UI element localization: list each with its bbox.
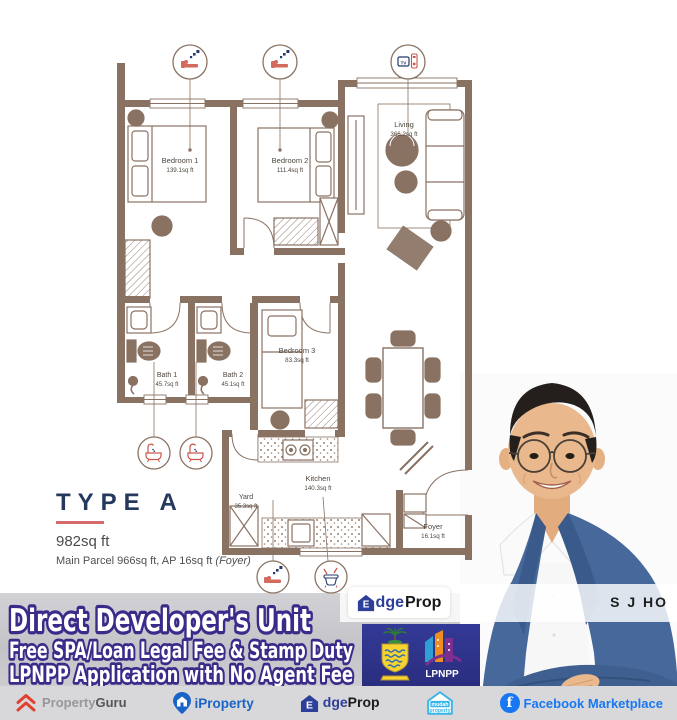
edgeprop-house-icon: E [357,594,375,612]
title-underline [56,521,104,524]
bath2-area: 45.1sq ft [221,382,244,388]
mudah-property-logo: mudah property [426,690,454,716]
living-label: Living [394,120,414,129]
bedroom3-label: Bedroom 3 [279,346,316,355]
penang-crest-icon [378,628,412,682]
bathtub-icon [138,437,170,469]
bed-icon [257,561,289,593]
kitchen-label: Kitchen [305,474,330,483]
foyer-label: Foyer [423,522,443,531]
edgeprop-icon: E [300,694,319,713]
living-area: 366.2sq ft [390,131,417,138]
lpnpp-label: LPNPP [425,669,459,680]
banner-line3: LPNPP Application with No Agent Fee [9,663,353,686]
bed-icon [263,45,297,79]
portal-logos-bar: PropertyGuru iProperty E dgeProp mudah p… [0,686,677,720]
kitchen-area: 140.3sq ft [304,485,331,492]
banner-line1: Direct Developer's Unit [9,603,311,639]
facebook-icon: f [500,693,520,713]
bath1-label: Bath 1 [157,372,177,379]
bath2-label: Bath 2 [223,372,243,379]
bath1-area: 45.7sq ft [155,382,178,388]
agent-name: S J HO [610,594,668,610]
mudah-property-icon: mudah property [426,690,454,716]
parcel-note: Main Parcel 966sq ft, AP 16sq ft (Foyer) [56,555,251,567]
parcel-note-text: Main Parcel 966sq ft, AP 16sq ft [56,555,212,567]
tv-icon-label: TV [401,61,407,66]
unit-type-block: TYPE A 982sq ft Main Parcel 966sq ft, AP… [56,489,251,567]
unit-type-title: TYPE A [56,489,251,517]
bedroom2-area: 111.4sq ft [277,167,304,174]
foyer-area: 16.1sq ft [421,533,445,540]
propertyguru-icon [14,693,38,713]
authority-logo-panel: LPNPP [362,624,480,686]
svg-text:E: E [306,700,313,711]
svg-text:property: property [429,708,450,714]
facebook-marketplace-logo: f Facebook Marketplace [500,693,663,713]
iproperty-logo: iProperty [173,692,254,714]
bedroom2-label: Bedroom 2 [272,156,309,165]
bathtub-icon [180,437,212,469]
bedroom1-area: 139.1sq ft [166,167,193,174]
edgeprop-logo: E dgeProp [300,694,380,713]
propertyguru-logo: PropertyGuru [14,693,127,713]
property-flyer: { "floor_plan": { "type_title": "TYPE A"… [0,0,677,720]
bed-icon [173,45,207,79]
svg-text:E: E [362,599,369,610]
tv-icon: TV [391,45,425,79]
edgeprop-badge-end: Prop [405,594,441,612]
svg-text:mudah: mudah [431,702,448,708]
edgeprop-badge-mid: dge [376,594,404,612]
bedroom3-area: 83.3sq ft [285,357,309,364]
parcel-note-foyer: (Foyer) [215,555,250,567]
total-area: 982sq ft [56,533,251,550]
lpnpp-logo: LPNPP [420,628,464,682]
bedroom1-label: Bedroom 1 [162,156,199,165]
iproperty-icon [173,692,191,714]
banner-line2: Free SPA/Loan Legal Fee & Stamp Duty [9,639,353,664]
cooking-pot-icon [315,561,347,593]
